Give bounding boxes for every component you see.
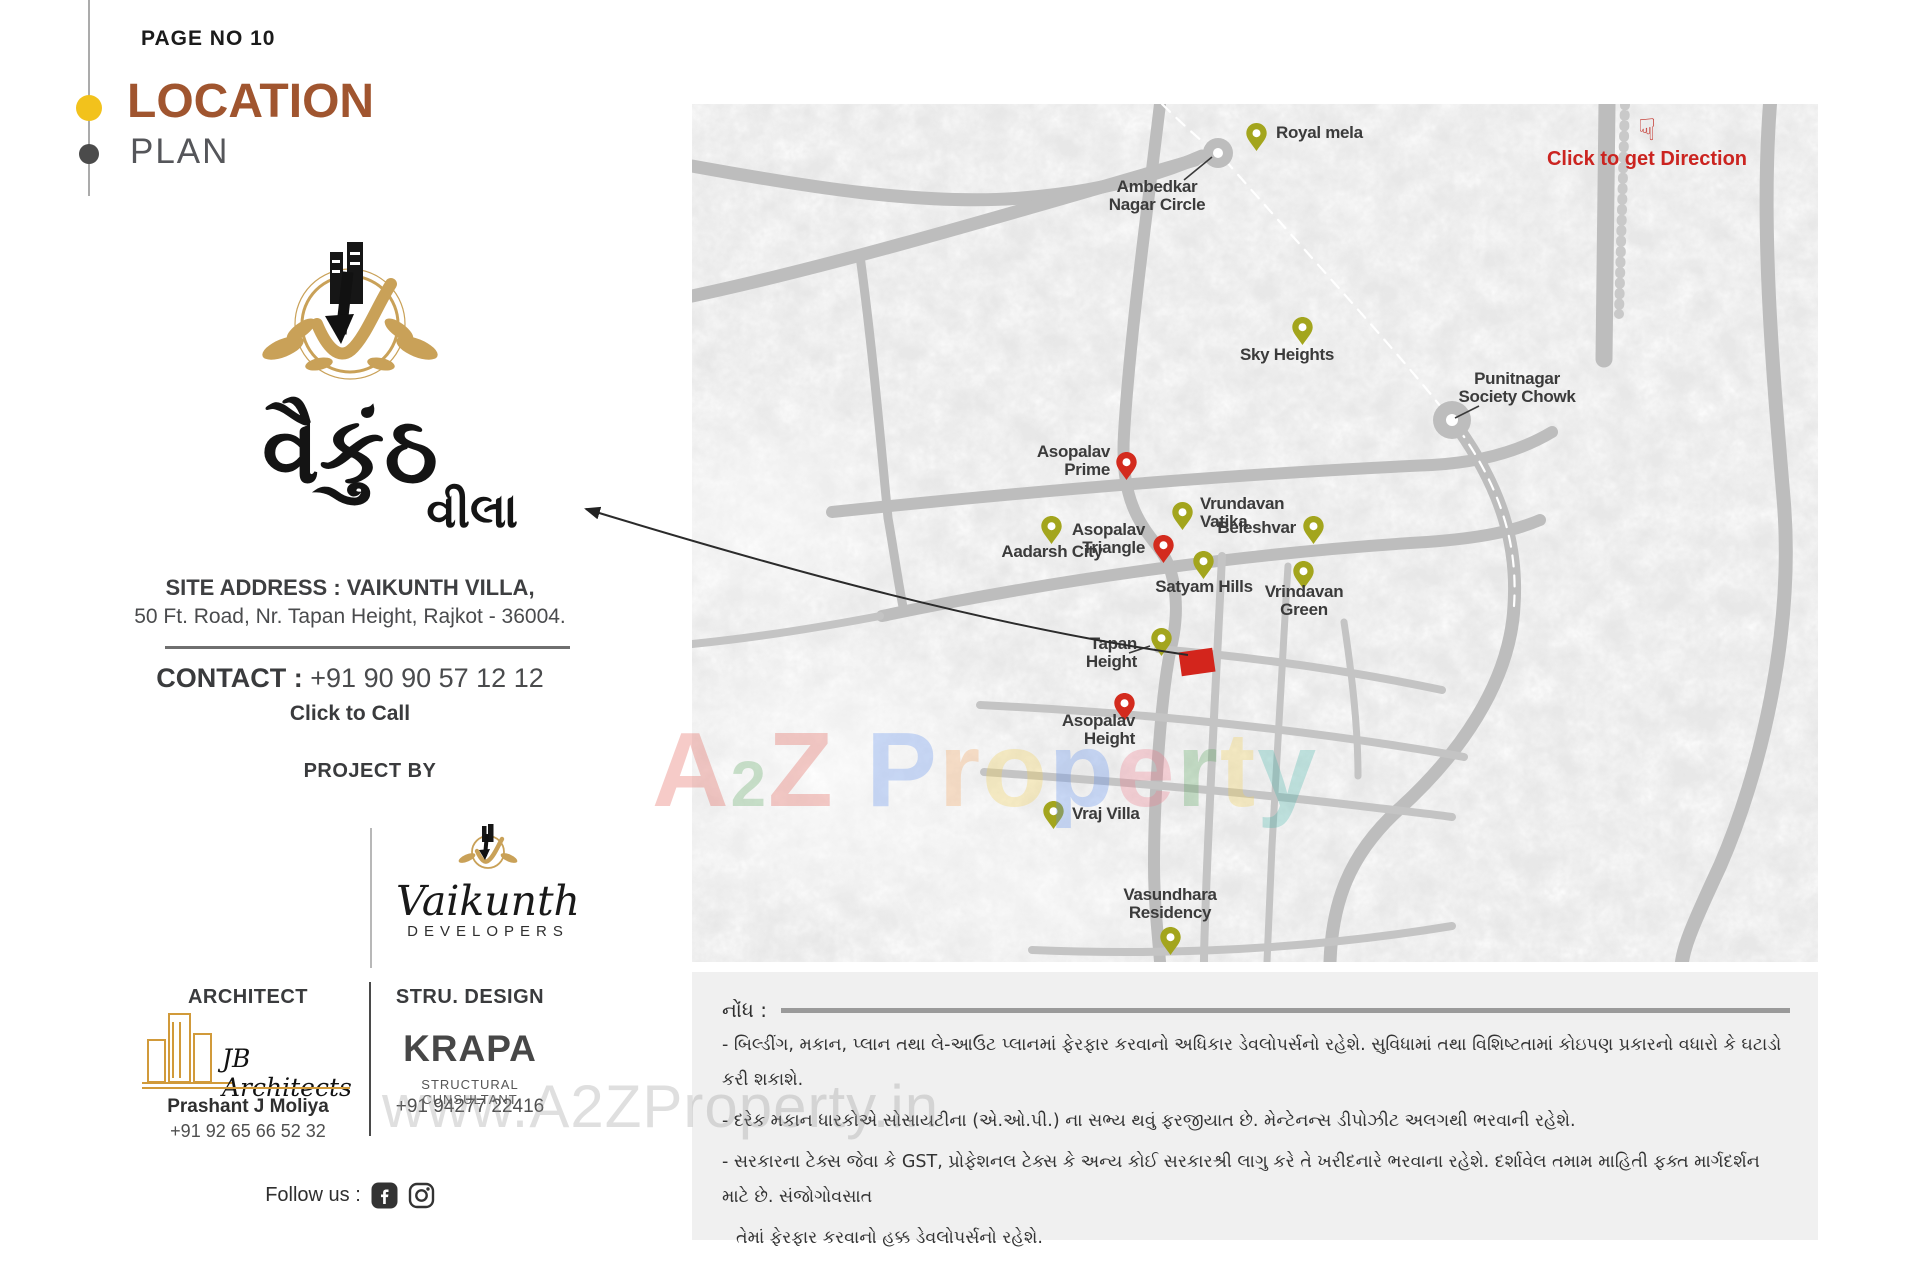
map-pin-asopalav-prime bbox=[1116, 452, 1137, 480]
divider bbox=[142, 1087, 350, 1089]
site-address-line2: 50 Ft. Road, Nr. Tapan Height, Rajkot - … bbox=[90, 605, 610, 629]
map-pin-tapan-height bbox=[1151, 628, 1172, 656]
note-line: તેમાં ફેરફાર કરવાનો હક્ક ડેવલોપર્સનો રહે… bbox=[722, 1221, 1790, 1256]
map-label-vraj-villa: Vraj Villa bbox=[1072, 805, 1140, 823]
map-label-vasundhara-residency: VasundharaResidency bbox=[1123, 886, 1216, 922]
map-label-ambedkar-nagar-circle: AmbedkarNagar Circle bbox=[1109, 178, 1206, 214]
map-label-beleshvar: Beleshvar bbox=[1217, 519, 1296, 537]
map-pin-vasundhara-residency bbox=[1160, 927, 1181, 955]
map-label-satyam-hills: Satyam Hills bbox=[1155, 578, 1253, 596]
developer-name: Vaikunth bbox=[388, 877, 588, 925]
hand-point-down-icon: ☟ bbox=[1537, 116, 1757, 146]
map-pin-beleshvar bbox=[1303, 516, 1324, 544]
map-pin-royal-mela bbox=[1246, 123, 1267, 151]
map-label-royal-mela: Royal mela bbox=[1276, 124, 1363, 142]
site-marker bbox=[1178, 648, 1215, 676]
site-address: SITE ADDRESS : VAIKUNTH VILLA, 50 Ft. Ro… bbox=[90, 575, 610, 629]
map-pin-sky-heights bbox=[1292, 317, 1313, 345]
architect-phone[interactable]: +91 92 65 66 52 32 bbox=[120, 1121, 376, 1142]
map-pin-vrundavan-vatika bbox=[1172, 502, 1193, 530]
page-subtitle: PLAN bbox=[130, 132, 229, 172]
map-label-tapan-height: TapanHeight bbox=[1086, 635, 1137, 671]
map-label-punitnagar-society-chowk: PunitnagarSociety Chowk bbox=[1458, 370, 1575, 406]
map-pin-vraj-villa bbox=[1043, 801, 1064, 829]
structural-phone[interactable]: +91 94277 22416 bbox=[380, 1096, 560, 1118]
page-number: PAGE NO 10 bbox=[141, 27, 275, 51]
divider bbox=[781, 1008, 1790, 1013]
brand-logo: વૈકુંઠ વીલા bbox=[130, 238, 570, 540]
map-pin-satyam-hills bbox=[1193, 551, 1214, 579]
notes-title: નોંધ : bbox=[722, 998, 767, 1022]
developer-logo: Vaikunth DEVELOPERS bbox=[388, 824, 588, 940]
map-label-sky-heights: Sky Heights bbox=[1240, 346, 1334, 364]
page-title: LOCATION bbox=[127, 74, 374, 129]
page-root: PAGE NO 10 LOCATION PLAN વૈકુંઠ વીલા SIT… bbox=[0, 0, 1920, 1280]
site-address-line1: SITE ADDRESS : VAIKUNTH VILLA, bbox=[90, 575, 610, 601]
structural-firm: KRAPA bbox=[380, 1028, 560, 1070]
get-direction-button[interactable]: ☟ Click to get Direction bbox=[1537, 116, 1757, 171]
follow-row: Follow us : bbox=[180, 1182, 520, 1209]
facebook-icon[interactable] bbox=[371, 1182, 398, 1209]
note-line: - દરેક મકાન ધારકોએ સોસાયટીના (એ.ઓ.પી.) ન… bbox=[722, 1104, 1790, 1139]
map-label-vrindavan-green: VrindavanGreen bbox=[1265, 583, 1344, 619]
architect-person: Prashant J Moliya bbox=[120, 1096, 376, 1118]
map-label-asopalav-triangle: AsopalavTriangle bbox=[1072, 521, 1145, 557]
get-direction-label: Click to get Direction bbox=[1537, 148, 1757, 171]
developer-emblem-icon bbox=[453, 824, 523, 876]
timeline-dot-yellow bbox=[76, 95, 102, 121]
brand-emblem-icon bbox=[235, 238, 465, 406]
instagram-icon[interactable] bbox=[408, 1182, 435, 1209]
contact-label: CONTACT : bbox=[156, 663, 302, 693]
note-line: - સરકારના ટેક્સ જેવા કે GST, પ્રોફેશનલ ટ… bbox=[722, 1145, 1790, 1215]
location-map[interactable]: Royal melaAmbedkarNagar CircleSky Height… bbox=[692, 104, 1818, 962]
follow-label: Follow us : bbox=[265, 1184, 361, 1207]
notes-lines: - બિલ્ડીંગ, મકાન, પ્લાન તથા લે-આઉટ પ્લાન… bbox=[722, 1028, 1790, 1256]
architect-heading: ARCHITECT bbox=[120, 986, 376, 1009]
structural-heading: STRU. DESIGN bbox=[380, 986, 560, 1009]
architect-firm: JB Architects bbox=[222, 1044, 382, 1102]
notes-header: નોંધ : bbox=[722, 998, 1790, 1022]
map-label-asopalav-prime: AsopalavPrime bbox=[1037, 443, 1110, 479]
architect-logo-icon bbox=[142, 1008, 232, 1088]
map-pin-asopalav-triangle bbox=[1153, 535, 1174, 563]
divider bbox=[165, 646, 570, 649]
note-line: - બિલ્ડીંગ, મકાન, પ્લાન તથા લે-આઉટ પ્લાન… bbox=[722, 1028, 1790, 1098]
notes-panel: નોંધ : - બિલ્ડીંગ, મકાન, પ્લાન તથા લે-આઉ… bbox=[692, 972, 1818, 1240]
contact-phone[interactable]: +91 90 90 57 12 12 bbox=[310, 663, 543, 693]
project-by-heading: PROJECT BY bbox=[130, 760, 610, 783]
divider bbox=[370, 828, 372, 968]
map-pin-aadarsh-city bbox=[1041, 516, 1062, 544]
timeline-dot-gray bbox=[79, 144, 99, 164]
map-label-asopalav-height: AsopalavHeight bbox=[1062, 712, 1135, 748]
contact-row: CONTACT : +91 90 90 57 12 12 bbox=[90, 663, 610, 694]
developer-sub: DEVELOPERS bbox=[388, 923, 588, 940]
click-to-call-button[interactable]: Click to Call bbox=[90, 702, 610, 726]
